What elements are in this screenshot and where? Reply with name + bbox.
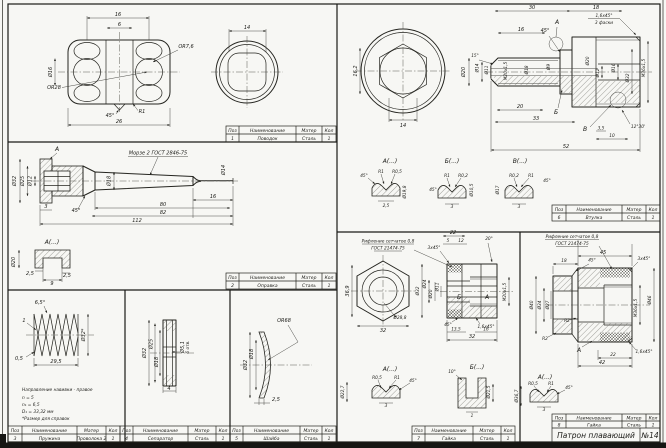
part-pos: 2 xyxy=(231,283,234,289)
col-header: Поз xyxy=(414,428,423,434)
dim-label: 45° xyxy=(588,258,596,264)
dim-label: 1 xyxy=(22,318,25,324)
dim-label: R0,5 xyxy=(528,381,538,387)
dim-label: OR68 xyxy=(277,318,291,324)
col-header: Наименование xyxy=(250,128,285,134)
detail-label: А(...) xyxy=(382,366,398,373)
panel-opravka: А Морзе 2 ГОСТ 2846-75 Ø32 Ø25 Ø12 Ø18 Ø… xyxy=(10,146,238,287)
col-header: Поз xyxy=(122,428,131,434)
dim-label: 26 xyxy=(116,119,122,125)
spring-note: D₁ = 33,32 мм xyxy=(22,409,54,415)
col-header: Поз xyxy=(555,415,564,421)
dim-label: Ø32 xyxy=(242,360,249,371)
titleblock-vtulka: Поз Наименование Матер Кол 6 Втулка Стал… xyxy=(552,205,660,221)
dim-label: 14 xyxy=(244,25,250,31)
dim-label: 45° xyxy=(543,178,551,184)
dim-label: 22 xyxy=(450,230,456,236)
dim-label: Ø18 xyxy=(106,176,113,187)
dim-label: Ø17 xyxy=(494,185,501,195)
dim-label: 12 xyxy=(458,238,464,244)
view-label: А xyxy=(554,19,559,26)
dim-label: 45° xyxy=(72,208,81,214)
part-material: Сталь xyxy=(302,136,316,142)
dim-label: Ø25 xyxy=(19,176,26,187)
detail-label: А(...) xyxy=(537,374,553,381)
dim-label: R0,2 xyxy=(509,173,519,179)
dim-label: 45° xyxy=(409,378,417,384)
col-header: Кол xyxy=(325,275,334,281)
part-pos: 3 xyxy=(14,436,17,442)
dim-label: Ø20 xyxy=(460,67,467,78)
dim-label: Ø28,8 xyxy=(393,314,407,321)
col-header: Поз xyxy=(232,428,241,434)
col-header: Матер xyxy=(84,428,99,434)
dim-label: R1 xyxy=(394,375,400,381)
dim-label: Ø32 xyxy=(414,286,421,296)
dim-label: Ø12 xyxy=(27,176,34,187)
opravka-linework xyxy=(20,153,238,226)
dim-label: Ø18 xyxy=(153,357,160,368)
part-material: Сталь xyxy=(627,215,641,221)
dim-label: Ø16 xyxy=(47,67,54,78)
dim-label: 6,5° xyxy=(35,300,46,306)
dim-label: R2 xyxy=(564,318,570,324)
part-qty: 1 xyxy=(507,436,510,442)
dim-label: 45° xyxy=(565,385,573,391)
col-header: Матер xyxy=(302,275,317,281)
dim-label: R1 xyxy=(139,109,146,115)
panel-separator: Ø32 Ø25 Ø18 Ø5,1 6 отв. 4 xyxy=(141,320,194,393)
part-qty: 1 xyxy=(652,215,655,221)
col-header: Кол xyxy=(219,428,228,434)
dim-label: Ø36,7 xyxy=(513,389,520,403)
knurl-note: Рифление сетчатое 0,8 xyxy=(546,234,599,240)
dim-label: 4 xyxy=(167,386,170,392)
dim-label: 6 отв. xyxy=(185,340,191,353)
col-header: Поз xyxy=(228,128,237,134)
part-name: Гайка xyxy=(587,422,601,428)
dim-label: М20х1,5 xyxy=(502,282,508,301)
view-label: Б xyxy=(554,109,558,116)
view-label: А xyxy=(54,146,59,153)
dim-label: Ø10,5 xyxy=(468,183,475,197)
dim-label: 45° xyxy=(541,28,550,34)
dim-label: 14 xyxy=(400,123,406,129)
dim-label: Ø27 xyxy=(544,300,551,310)
dim-label: 3 xyxy=(385,403,388,409)
dim-label: Ø18 xyxy=(248,349,255,360)
titleblock-opravka: Поз Наименование Матер Кол 2 Оправка Ста… xyxy=(226,273,336,289)
dim-label: Ø40 xyxy=(528,300,535,310)
dim-label: М20х1,5 xyxy=(503,61,509,80)
part-material: Сталь xyxy=(480,436,494,442)
part-pos: 8 xyxy=(558,422,561,428)
sheet-title: Патрон плавающий xyxy=(557,431,635,440)
dim-label: Ø34 xyxy=(536,300,543,310)
col-header: Наименование xyxy=(32,428,67,434)
dim-label: Ø16 xyxy=(610,63,617,73)
dim-label: 36,9 xyxy=(345,285,351,296)
separator-linework xyxy=(149,320,194,393)
dim-label: 45° xyxy=(106,113,115,119)
col-header: Наименование xyxy=(577,207,612,213)
dim-label: Ø18 xyxy=(523,65,530,75)
vtulka-roundview xyxy=(355,22,451,122)
dim-label: 32 xyxy=(380,328,386,334)
dim-label: R1 xyxy=(378,169,384,175)
spring-note: n = 5 xyxy=(22,395,34,401)
dim-label: 16,2 xyxy=(353,65,359,76)
dim-label: Ø46 xyxy=(646,295,653,305)
col-header: Кол xyxy=(649,415,658,421)
dim-label: Ø32 xyxy=(11,176,18,187)
dim-label: 45° xyxy=(360,173,368,179)
titleblock-gayka7: Поз Наименование Матер Кол 7 Гайка Сталь… xyxy=(412,426,515,442)
dim-label: 13,5 xyxy=(451,327,461,333)
col-header: Кол xyxy=(504,428,513,434)
panel-gayka7: Рифление сетчатое 0,8 ГОСТ 21474-75 36,9… xyxy=(339,230,515,419)
col-header: Кол xyxy=(325,428,334,434)
drawing-sheet: 16 6 Ø16 OR28 OR7,6 45° R1 26 14 xyxy=(0,0,666,448)
dim-label: 20° xyxy=(485,236,493,242)
dim-label: 45 xyxy=(600,250,606,256)
dim-label: R1 xyxy=(528,173,534,179)
part-material: Сталь xyxy=(627,422,641,428)
dim-label: Ø11 xyxy=(434,282,441,292)
dim-label: 3 xyxy=(518,204,521,210)
panel-gayka8: Рифление сетчатое 0,8 ГОСТ 21474-75 45 1… xyxy=(513,234,654,413)
dim-label: 3х45° xyxy=(428,245,441,251)
col-header: Наименование xyxy=(577,415,612,421)
chamfer-note: 1,6х45° xyxy=(596,13,613,19)
titleblock-separator: Поз Наименование Матер Кол 4 Сепаратор С… xyxy=(120,426,230,442)
part-name: Шайба xyxy=(263,436,279,442)
dim-label: 2,5 xyxy=(272,397,280,403)
dim-label: Ø12 xyxy=(594,68,601,78)
part-qty: 1 xyxy=(328,136,331,142)
dim-label: Ø21,5 xyxy=(485,385,492,399)
view-label: Б xyxy=(457,294,461,301)
knurl-note: ГОСТ 21474-75 xyxy=(371,246,405,252)
dim-label: Ø20 xyxy=(10,257,17,268)
col-header: Кол xyxy=(649,207,658,213)
dim-label: Ø25 xyxy=(148,339,155,350)
dim-label: 0,5 xyxy=(15,356,23,362)
taper-note: Морзе 2 ГОСТ 2846-75 xyxy=(129,151,187,157)
dim-label: 6 xyxy=(118,22,121,28)
dim-label: R0,5 xyxy=(392,169,402,175)
dim-label: 112 xyxy=(132,218,142,224)
view-label: А xyxy=(576,347,581,354)
col-header: Поз xyxy=(228,275,237,281)
dim-label: 10 xyxy=(609,133,615,139)
part-name: Поводок xyxy=(257,136,277,142)
dim-label: 3,5 xyxy=(598,126,605,132)
dim-label: 82 xyxy=(160,210,166,216)
dim-label: OR28 xyxy=(47,85,61,91)
col-header: Матер xyxy=(304,428,319,434)
spring-note: n₁ = 6,5 xyxy=(22,402,40,408)
dim-label: Ø22,7 xyxy=(339,385,346,399)
panel-pruzhina: 6,5° 1 0,5 29,5 Ø32* Направление навивки… xyxy=(15,300,94,422)
shayba-linework xyxy=(240,325,312,405)
part-pos: 7 xyxy=(417,436,420,442)
dim-label: 80 xyxy=(160,202,166,208)
dim-label: R0,5 xyxy=(372,375,382,381)
dim-label: Ø24 xyxy=(421,279,428,289)
dim-label: 2,5 xyxy=(26,271,34,277)
col-header: Кол xyxy=(325,128,334,134)
detail-label: А(...) xyxy=(382,158,398,165)
titleblock-gayka8-main: Поз Наименование Матер Кол 8 Гайка Сталь… xyxy=(552,414,660,442)
dim-label: 3 xyxy=(451,204,454,210)
sheet-number: №14 xyxy=(640,431,659,440)
chamfer-note: 3 фаски xyxy=(595,20,613,26)
dim-label: 16 xyxy=(518,27,524,33)
dim-label: 9 xyxy=(50,281,53,287)
dim-label: 5 xyxy=(447,238,450,244)
dim-label: 3 xyxy=(543,407,546,413)
titleblock-povodok: Поз Наименование Матер Кол 1 Поводок Ста… xyxy=(226,126,336,142)
detail-label: Б(...) xyxy=(470,364,485,371)
col-header: Матер xyxy=(627,207,642,213)
vtulka-section xyxy=(469,11,652,152)
dim-label: Ø9 xyxy=(545,64,552,71)
part-material: Сталь xyxy=(304,436,318,442)
dim-label: Ø32* xyxy=(80,328,87,342)
col-header: Наименование xyxy=(250,275,285,281)
col-header: Матер xyxy=(627,415,642,421)
part-name: Гайка xyxy=(442,436,456,442)
dim-label: 29,5 xyxy=(50,359,61,365)
part-material: Сталь xyxy=(195,436,209,442)
col-header: Поз xyxy=(555,207,564,213)
col-header: Кол xyxy=(109,428,118,434)
dim-label: 3х45° xyxy=(638,256,651,262)
col-header: Наименование xyxy=(254,428,289,434)
dim-label: 15° xyxy=(471,53,479,59)
titleblock-pruzhina: Поз Наименование Матер Кол 3 Пружина Про… xyxy=(8,426,120,442)
dim-label: 12°30' xyxy=(631,124,645,130)
col-header: Матер xyxy=(480,428,495,434)
col-header: Матер xyxy=(302,128,317,134)
dim-label: 30 xyxy=(529,5,535,11)
panel-povodok: 16 6 Ø16 OR28 OR7,6 45° R1 26 14 xyxy=(47,12,283,127)
dim-label: 22 xyxy=(610,352,616,358)
col-header: Матер xyxy=(195,428,210,434)
part-name: Сепаратор xyxy=(148,436,174,442)
dim-label: 32 xyxy=(469,334,475,340)
dim-label: OR7,6 xyxy=(178,44,193,50)
dim-label: 18 xyxy=(561,258,567,264)
dim-label: Ø32 xyxy=(141,348,148,359)
povodok-linework xyxy=(55,16,283,127)
dim-label: 33 xyxy=(533,116,539,122)
dim-label: Ø19,8 xyxy=(401,185,408,199)
drawing-canvas: 16 6 Ø16 OR28 OR7,6 45° R1 26 14 xyxy=(0,0,666,448)
part-pos: 5 xyxy=(235,436,238,442)
dim-label: 2,5 xyxy=(383,203,390,209)
part-pos: 1 xyxy=(231,136,234,142)
col-header: Наименование xyxy=(143,428,178,434)
dim-label: Ø14 xyxy=(220,165,227,176)
panel-vtulka: 16,2 14 xyxy=(353,5,652,210)
dim-label: R1 xyxy=(548,381,554,387)
dim-label: 1,6х45° xyxy=(636,349,653,355)
dim-label: 3 xyxy=(44,204,47,210)
part-name: Втулка xyxy=(586,215,603,221)
knurl-note: ГОСТ 21474-75 xyxy=(555,241,589,247)
view-label: А xyxy=(484,294,489,301)
spring-note: *Размер для справок xyxy=(22,416,70,422)
spring-note: Направление навивки - правое xyxy=(22,387,93,393)
gayka7-details xyxy=(347,375,493,412)
part-qty: 1 xyxy=(328,283,331,289)
col-header: Поз xyxy=(11,428,20,434)
dim-label: 20 xyxy=(517,104,523,110)
detail-label: В(...) xyxy=(513,158,528,165)
dim-label: Ø11 xyxy=(483,65,490,75)
dim-label: Ø14 xyxy=(474,63,481,73)
gayka8-detail-a xyxy=(521,386,565,407)
part-qty: 1 xyxy=(652,422,655,428)
dim-label: 16 xyxy=(483,327,489,333)
dim-label: 2,5 xyxy=(63,273,71,279)
dim-label: Ø20 xyxy=(584,56,591,66)
dim-label: 45° xyxy=(429,187,437,193)
knurl-note: Рифление сетчатое 0,8 xyxy=(362,239,415,245)
col-header: Наименование xyxy=(432,428,467,434)
part-qty: 1 xyxy=(112,436,115,442)
part-pos: 6 xyxy=(558,215,561,221)
part-material: Сталь xyxy=(302,283,316,289)
part-material: Проволока 2 xyxy=(77,436,107,442)
part-name: Оправка xyxy=(257,283,277,289)
dim-label: 18 xyxy=(593,5,599,11)
dim-label: 10° xyxy=(448,369,456,375)
dim-label: 1 xyxy=(471,413,474,419)
dim-label: R0,2 xyxy=(458,173,468,179)
view-label: В xyxy=(583,126,587,133)
dim-label: R2 xyxy=(542,336,548,342)
titleblock-shayba: Поз Наименование Матер Кол 5 Шайба Сталь… xyxy=(230,426,336,442)
dim-label: 16 xyxy=(115,12,121,18)
detail-label: Б(...) xyxy=(445,158,460,165)
part-name: Пружина xyxy=(39,436,61,442)
part-qty: 1 xyxy=(328,436,331,442)
dim-label: 52 xyxy=(563,144,569,150)
dim-label: М36х1,5 xyxy=(641,58,647,77)
part-pos: 4 xyxy=(125,436,128,442)
detail-label: А(...) xyxy=(44,239,60,246)
dim-label: 42 xyxy=(599,360,605,366)
dim-label: Ø32 xyxy=(624,73,631,83)
dim-label: Ø5,1 xyxy=(179,341,186,354)
dim-label: М36х1,5 xyxy=(633,298,639,317)
dim-label: Ø20 xyxy=(427,289,434,299)
panel-shayba: OR68 Ø32 Ø18 2,5 xyxy=(240,318,312,405)
dim-label: 16 xyxy=(210,194,216,200)
dim-label: R1 xyxy=(444,173,450,179)
part-qty: 1 xyxy=(222,436,225,442)
